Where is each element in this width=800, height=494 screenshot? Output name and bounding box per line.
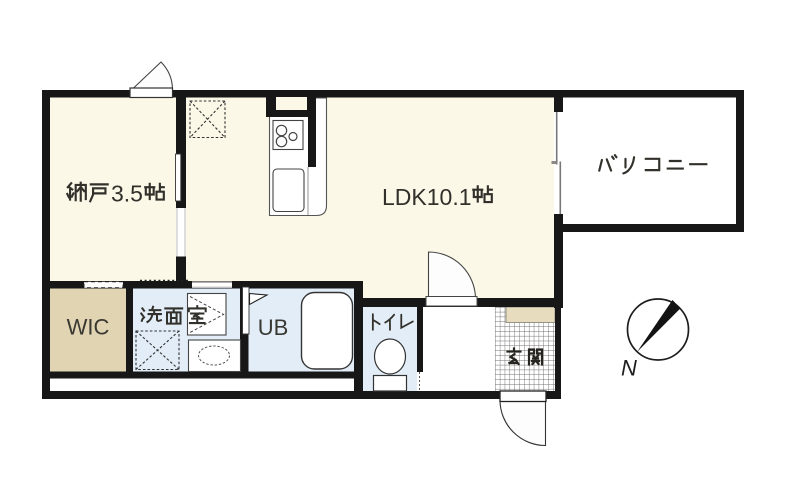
svg-text:3.5: 3.5: [111, 181, 143, 207]
svg-text:UB: UB: [258, 315, 289, 340]
svg-text:N: N: [621, 356, 637, 381]
svg-text:WIC: WIC: [67, 315, 110, 340]
svg-text:LDK10.1: LDK10.1: [382, 184, 472, 210]
